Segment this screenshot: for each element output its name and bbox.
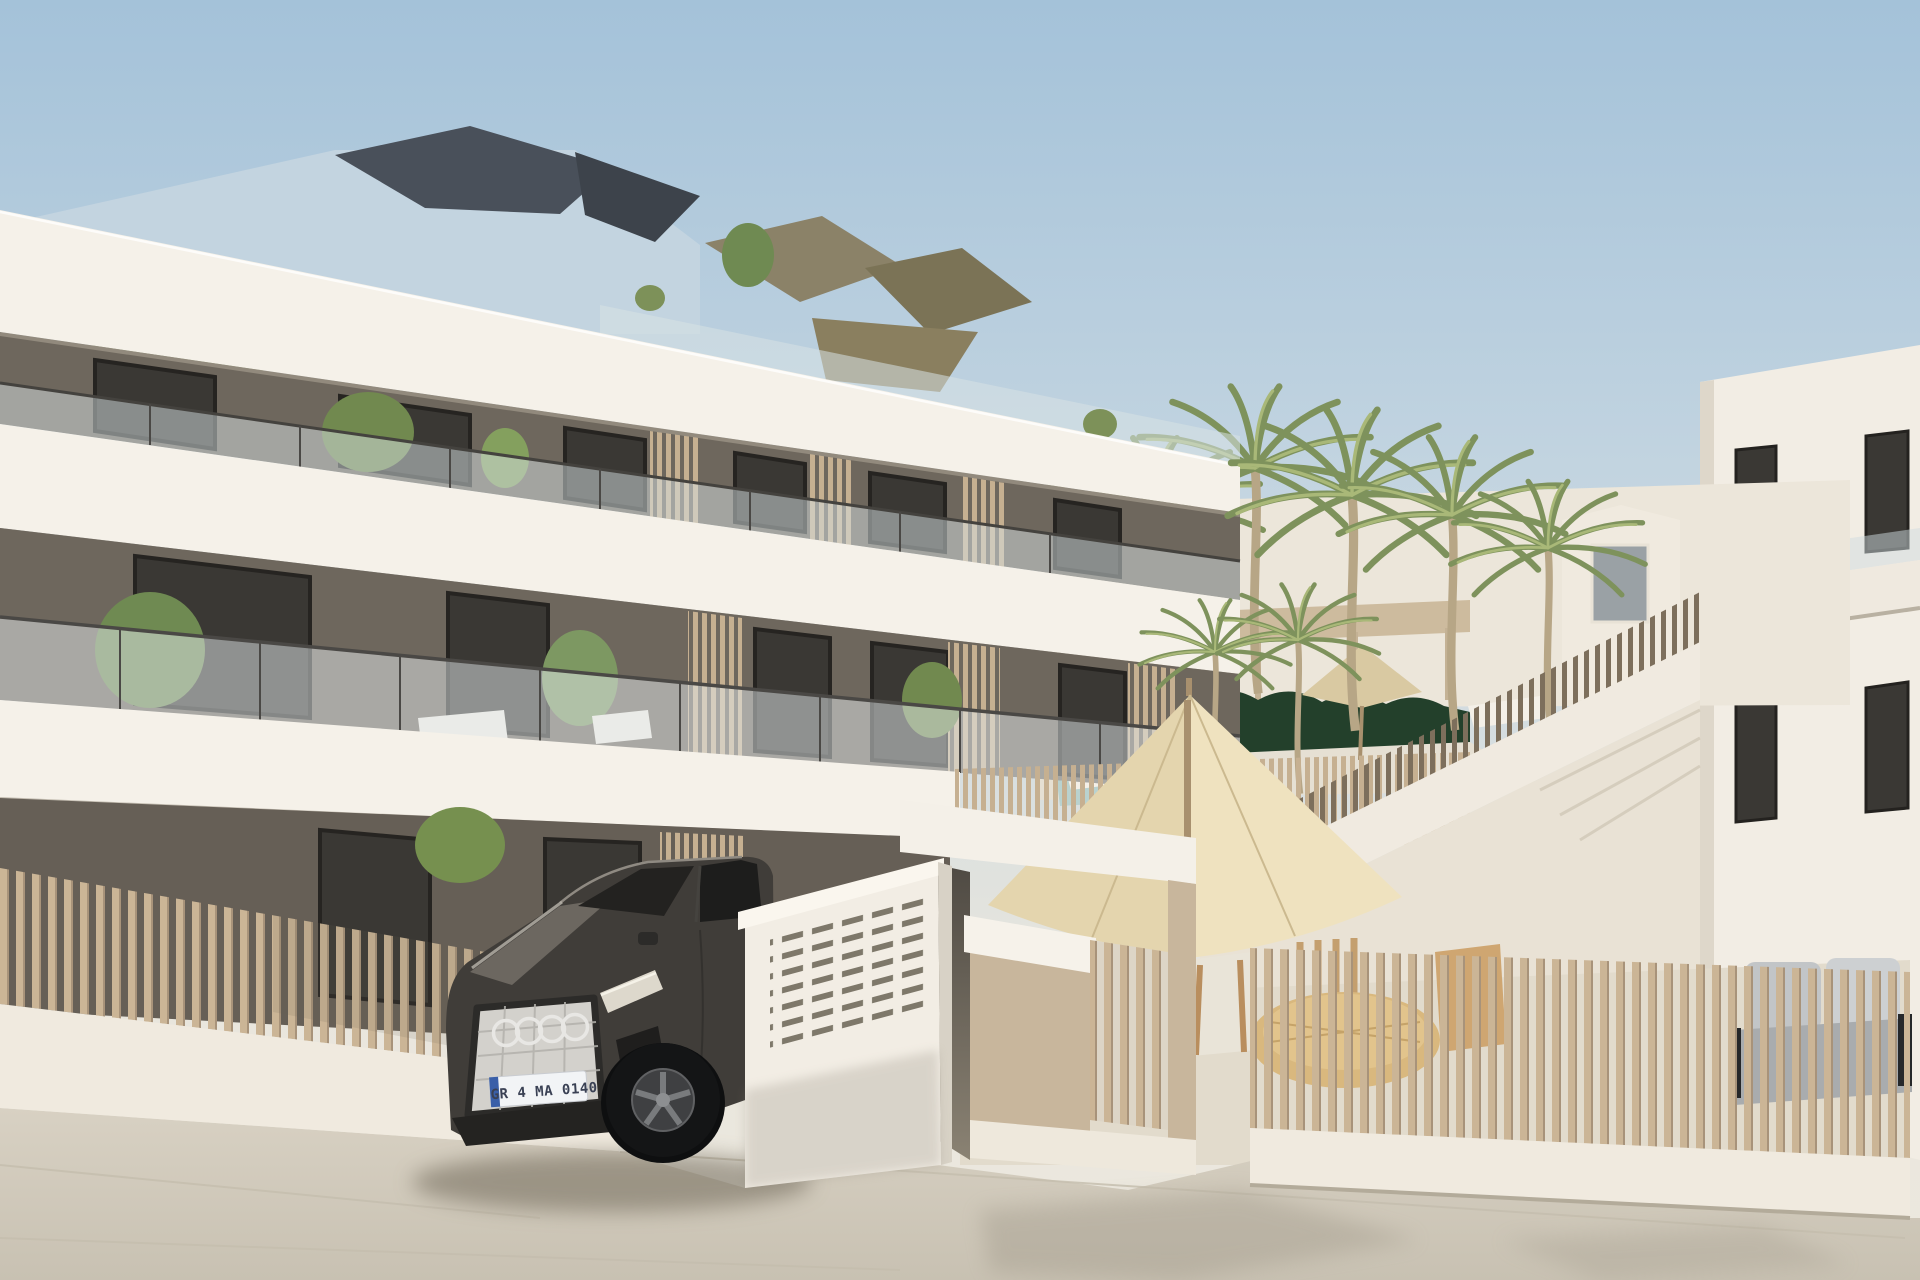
gate-pillar	[1168, 880, 1196, 1150]
pool-parasol-pole	[1360, 706, 1362, 760]
car-mirror	[638, 932, 658, 945]
render-scene: GR 4 MA 0140	[0, 0, 1920, 1280]
fence-slats	[1250, 948, 1910, 1158]
front-fence-right	[1250, 948, 1910, 1218]
scene-canvas: GR 4 MA 0140	[0, 0, 1920, 1280]
car-front-wheel	[601, 1043, 725, 1163]
gate-wall	[970, 950, 1090, 1150]
window	[1866, 682, 1908, 812]
gate-slats	[1090, 940, 1168, 1130]
window	[1736, 695, 1776, 822]
garden-shrub	[415, 807, 505, 883]
mailbox-wall	[738, 858, 952, 1188]
roof-tree	[722, 223, 774, 287]
wheel-hub	[656, 1093, 670, 1107]
roof-planter-plant	[635, 285, 665, 311]
umbrella-finial	[1186, 678, 1192, 696]
